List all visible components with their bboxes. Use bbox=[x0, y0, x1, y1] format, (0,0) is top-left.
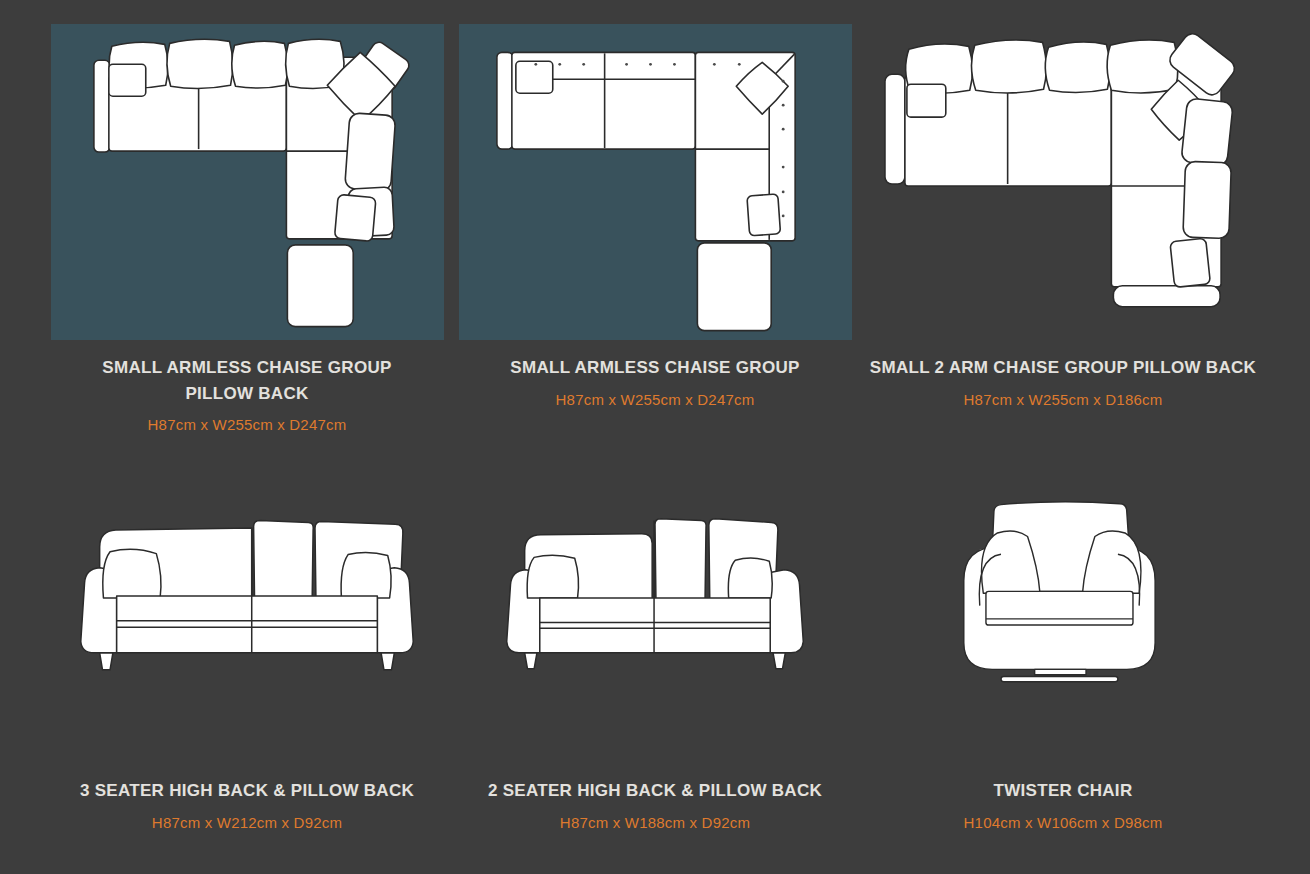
product-title: SMALL ARMLESS CHAISE GROUP bbox=[477, 355, 834, 381]
product-dimensions: H104cm x W106cm x D98cm bbox=[885, 814, 1242, 831]
product-title: 3 SEATER HIGH BACK & PILLOW BACK bbox=[69, 778, 426, 804]
product-caption: 3 SEATER HIGH BACK & PILLOW BACK H87cm x… bbox=[51, 778, 444, 831]
product-caption: SMALL ARMLESS CHAISE GROUP H87cm x W255c… bbox=[459, 355, 852, 408]
product-title: TWISTER CHAIR bbox=[885, 778, 1242, 804]
two-seater-sofa-front-view-illustration bbox=[485, 513, 825, 683]
product-caption: 2 SEATER HIGH BACK & PILLOW BACK H87cm x… bbox=[459, 778, 852, 831]
product-image-panel bbox=[459, 24, 852, 340]
product-card: SMALL 2 ARM CHAISE GROUP PILLOW BACK H87… bbox=[867, 24, 1260, 433]
product-card: TWISTER CHAIR H104cm x W106cm x D98cm bbox=[867, 433, 1260, 831]
size-guide-page: SMALL ARMLESS CHAISE GROUP PILLOW BACK H… bbox=[0, 0, 1310, 874]
product-card: SMALL ARMLESS CHAISE GROUP H87cm x W255c… bbox=[459, 24, 852, 433]
product-image-area bbox=[867, 433, 1260, 763]
product-title: 2 SEATER HIGH BACK & PILLOW BACK bbox=[477, 778, 834, 804]
product-image-area bbox=[51, 433, 444, 763]
product-dimensions: H87cm x W255cm x D247cm bbox=[477, 391, 834, 408]
product-image-area bbox=[459, 433, 852, 763]
corner-sofa-two-arm-pillow-back-top-view-illustration bbox=[867, 24, 1260, 340]
product-caption: TWISTER CHAIR H104cm x W106cm x D98cm bbox=[867, 778, 1260, 831]
product-dimensions: H87cm x W188cm x D92cm bbox=[477, 814, 834, 831]
product-title: SMALL ARMLESS CHAISE GROUP PILLOW BACK bbox=[69, 355, 426, 406]
product-title: SMALL 2 ARM CHAISE GROUP PILLOW BACK bbox=[865, 355, 1262, 381]
product-dimensions: H87cm x W255cm x D247cm bbox=[69, 416, 426, 433]
product-image-area bbox=[867, 24, 1260, 340]
product-dimensions: H87cm x W212cm x D92cm bbox=[69, 814, 426, 831]
product-image-panel bbox=[51, 24, 444, 340]
product-caption: SMALL ARMLESS CHAISE GROUP PILLOW BACK H… bbox=[51, 355, 444, 433]
product-card: 3 SEATER HIGH BACK & PILLOW BACK H87cm x… bbox=[51, 433, 444, 831]
product-card: 2 SEATER HIGH BACK & PILLOW BACK H87cm x… bbox=[459, 433, 852, 831]
corner-sofa-pillow-back-top-view-illustration bbox=[51, 24, 444, 340]
twister-chair-front-view-illustration bbox=[939, 492, 1187, 705]
corner-sofa-plain-back-top-view-illustration bbox=[459, 24, 852, 340]
product-grid-row-top: SMALL ARMLESS CHAISE GROUP PILLOW BACK H… bbox=[0, 24, 1310, 433]
product-grid-row-bottom: 3 SEATER HIGH BACK & PILLOW BACK H87cm x… bbox=[0, 433, 1310, 831]
three-seater-sofa-front-view-illustration bbox=[58, 513, 436, 683]
product-dimensions: H87cm x W255cm x D186cm bbox=[885, 391, 1242, 408]
product-card: SMALL ARMLESS CHAISE GROUP PILLOW BACK H… bbox=[51, 24, 444, 433]
product-caption: SMALL 2 ARM CHAISE GROUP PILLOW BACK H87… bbox=[867, 355, 1260, 408]
